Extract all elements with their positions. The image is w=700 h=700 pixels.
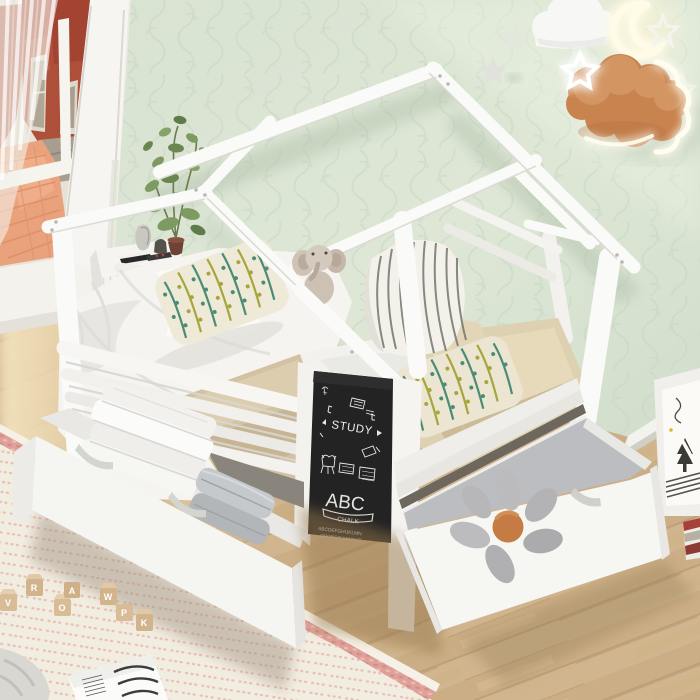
svg-text:R: R — [31, 583, 38, 593]
svg-text:P: P — [121, 608, 127, 618]
svg-text:W: W — [104, 592, 113, 602]
svg-text:K: K — [141, 618, 148, 628]
svg-text:O: O — [58, 603, 65, 613]
svg-text:V: V — [5, 598, 11, 608]
svg-text:A: A — [69, 586, 76, 596]
